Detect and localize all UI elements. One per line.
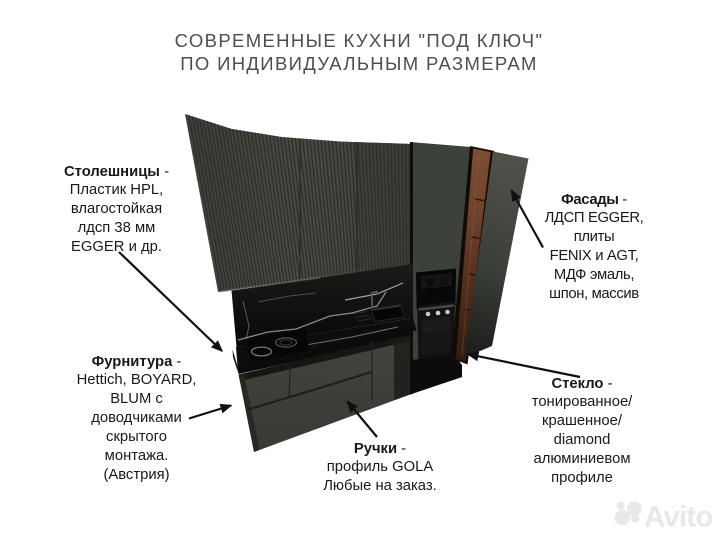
svg-text:Avito: Avito: [644, 501, 713, 534]
